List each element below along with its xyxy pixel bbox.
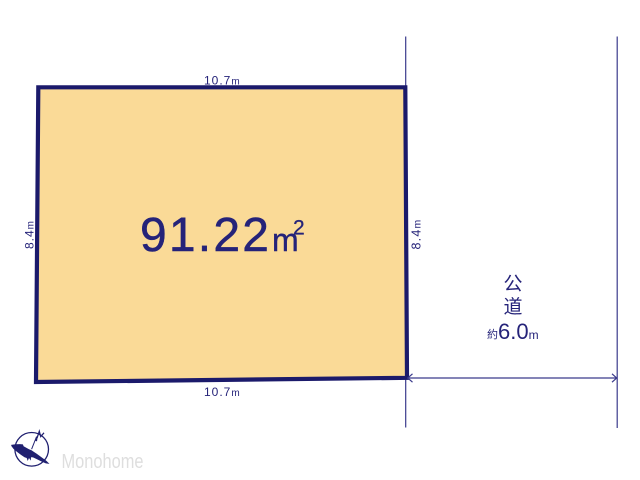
svg-text:道: 道 — [503, 296, 522, 318]
svg-text:8.4m: 8.4m — [410, 220, 424, 250]
svg-text:公: 公 — [503, 274, 522, 295]
svg-text:10.7m: 10.7m — [204, 385, 240, 399]
svg-text:8.4m: 8.4m — [23, 221, 37, 249]
svg-text:2: 2 — [293, 217, 305, 240]
svg-text:91.22: 91.22 — [140, 209, 271, 262]
svg-text:Monohome: Monohome — [62, 449, 144, 472]
svg-text:約6.0m: 約6.0m — [487, 319, 539, 344]
svg-text:10.7m: 10.7m — [204, 74, 240, 88]
